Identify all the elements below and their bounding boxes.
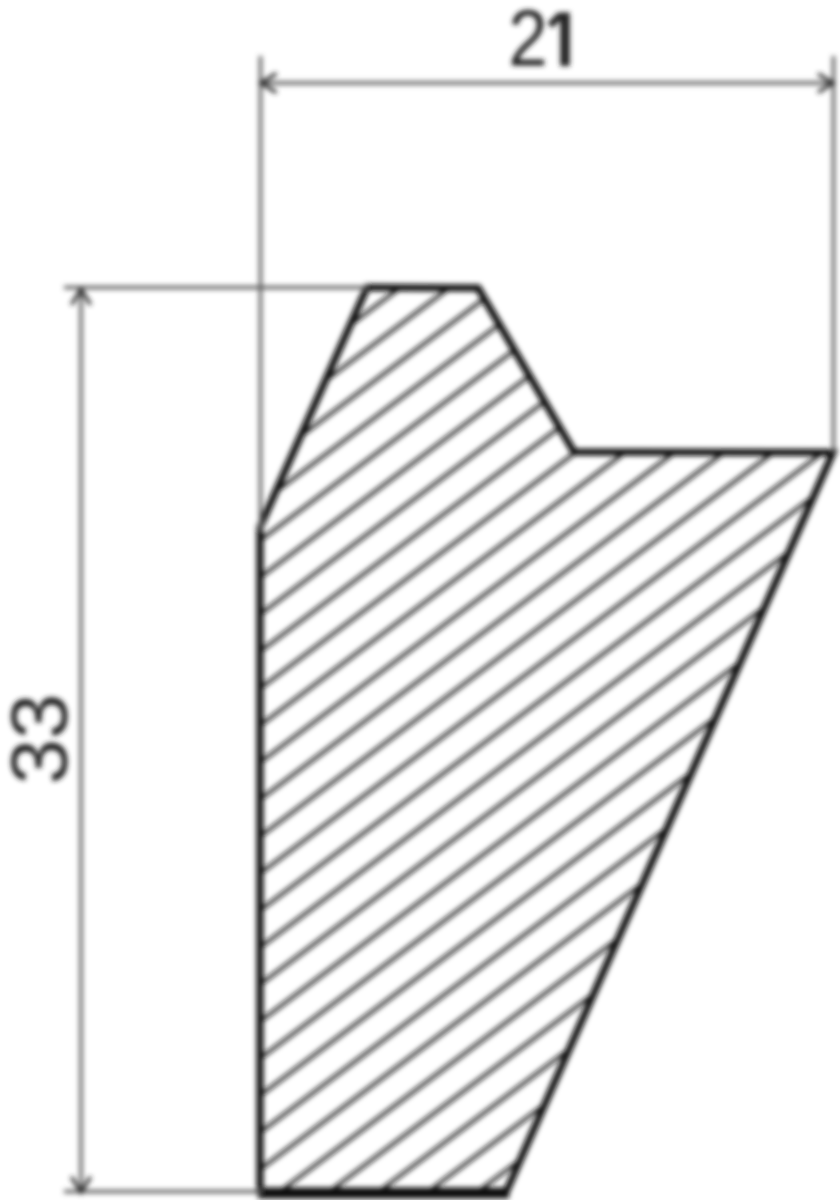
svg-text:2: 2 <box>508 0 547 82</box>
svg-text:33: 33 <box>0 694 84 785</box>
